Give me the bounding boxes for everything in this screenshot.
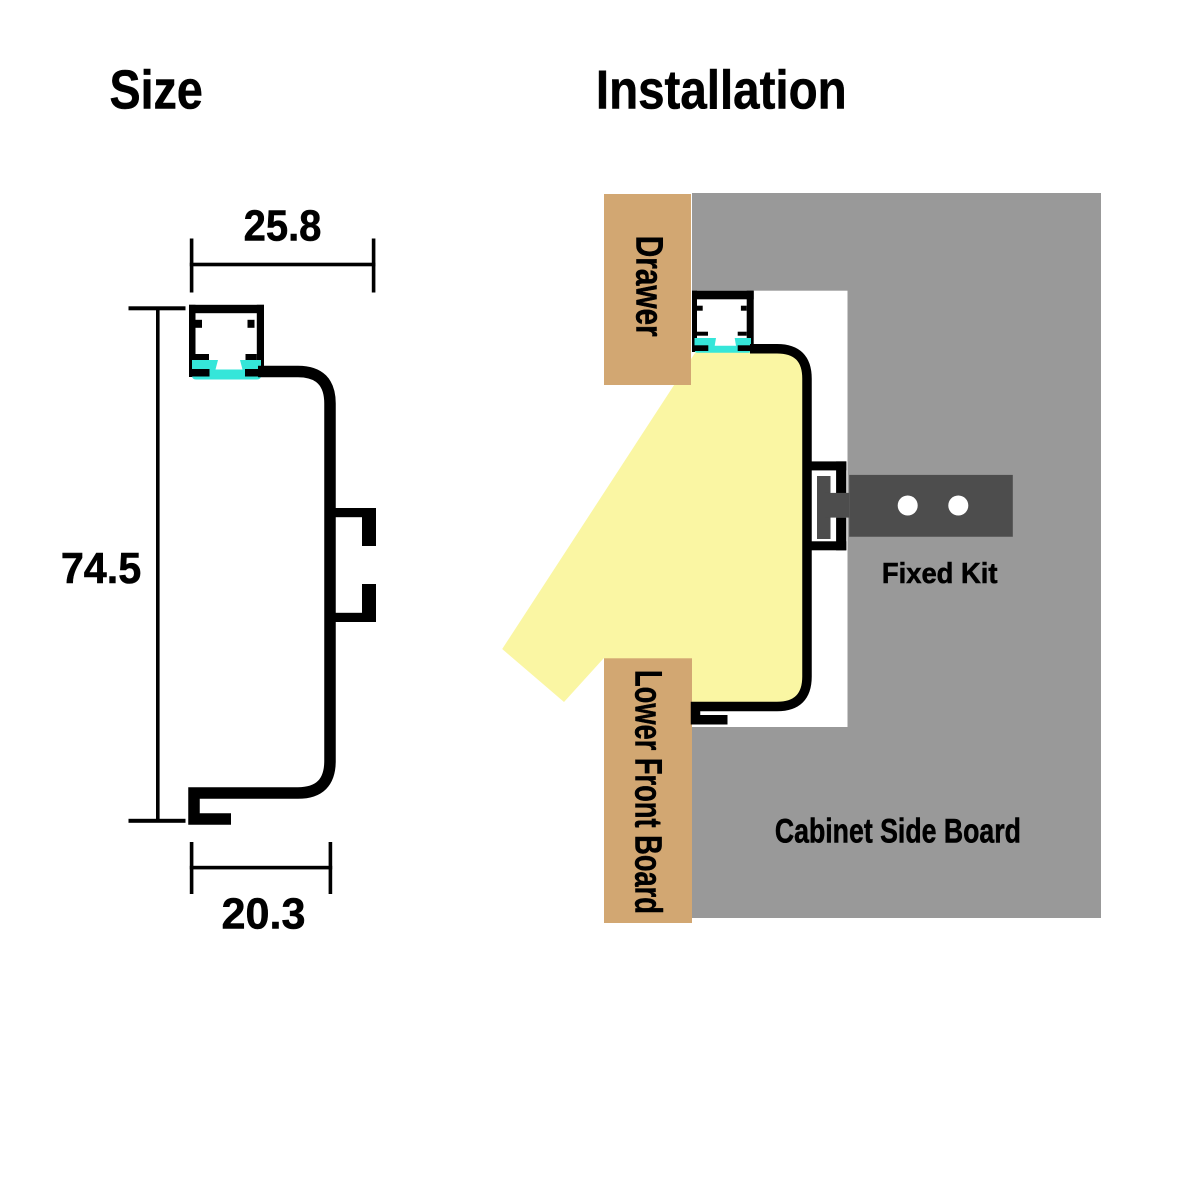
svg-text:Cabinet Side Board: Cabinet Side Board xyxy=(775,813,1021,851)
svg-text:20.3: 20.3 xyxy=(221,890,305,938)
svg-text:25.8: 25.8 xyxy=(244,201,322,250)
svg-text:Size: Size xyxy=(110,59,203,120)
svg-text:Drawer: Drawer xyxy=(628,236,670,337)
svg-text:74.5: 74.5 xyxy=(61,544,141,593)
svg-text:Installation: Installation xyxy=(596,58,847,120)
svg-text:Fixed Kit: Fixed Kit xyxy=(882,556,998,589)
svg-text:Lower Front Board: Lower Front Board xyxy=(626,670,669,914)
